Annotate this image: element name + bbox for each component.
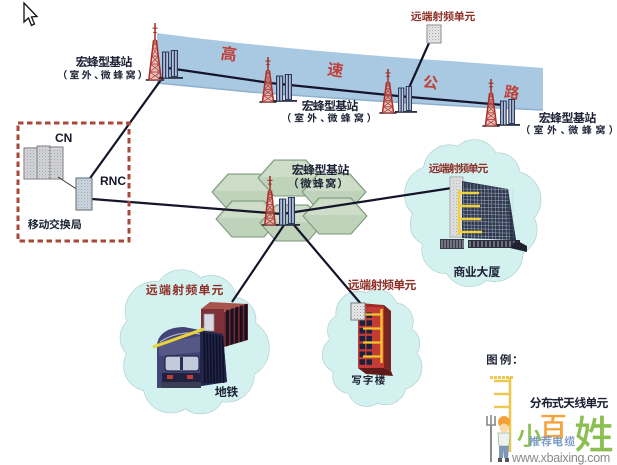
svg-text:RNC: RNC	[100, 174, 126, 188]
svg-text:www.xbaixing.com: www.xbaixing.com	[511, 451, 610, 465]
svg-text:CN: CN	[55, 131, 72, 145]
